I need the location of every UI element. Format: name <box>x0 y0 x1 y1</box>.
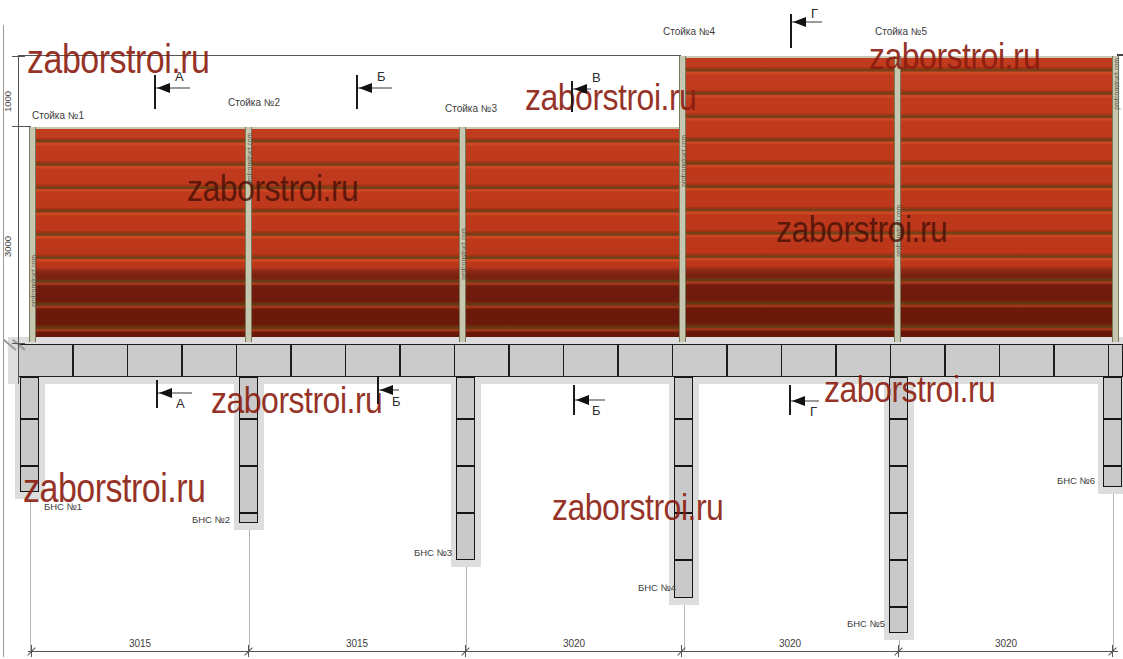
dim-span-1: 3015 <box>118 638 162 649</box>
fence-post-3: profconstruct.com <box>459 127 466 342</box>
watermark: zaborstroi.ru <box>552 486 723 530</box>
watermark: zaborstroi.ru <box>776 208 947 252</box>
dim-span-2: 3015 <box>335 638 379 649</box>
pile-label-3: БНС №3 <box>414 547 452 558</box>
watermark: zaborstroi.ru <box>824 368 995 412</box>
watermark: zaborstroi.ru <box>187 167 358 211</box>
marker-letter: Г <box>810 404 817 419</box>
pile-6 <box>1103 377 1122 487</box>
dim-height-3000: 3000 <box>2 213 13 257</box>
left-dim-tick <box>12 56 25 57</box>
fence-post-5: profconstruct.com <box>894 56 901 342</box>
pile-label-4: БНС №4 <box>638 582 676 593</box>
dim-span-4: 3020 <box>768 638 812 649</box>
left-dim-tick <box>12 343 25 344</box>
pile-label-5: БНС №5 <box>847 618 885 629</box>
watermark: zaborstroi.ru <box>525 76 696 120</box>
pile-1-extension-line <box>30 499 31 652</box>
watermark: zaborstroi.ru <box>211 379 382 423</box>
bottom-dimension-line <box>28 651 1118 652</box>
left-dim-tick <box>12 126 25 127</box>
marker-letter: Б <box>592 403 601 418</box>
marker-letter: В <box>592 70 601 85</box>
post-watermark-text: profconstruct.com <box>30 255 37 307</box>
watermark: zaborstroi.ru <box>869 35 1040 79</box>
marker-letter: Г <box>811 6 818 21</box>
pile-3-extension-line <box>466 567 467 652</box>
fence-drawing-canvas: profconstruct.com profconstruct.com prof… <box>0 0 1123 659</box>
pile-label-6: БНС №6 <box>1057 475 1095 486</box>
fence-panel-short-section <box>29 127 686 340</box>
post-label-4: Стойка №4 <box>663 26 715 37</box>
post-watermark-text: profconstruct.com <box>680 135 687 187</box>
post-watermark-text: profconstruct.com <box>460 228 467 280</box>
fence-post-6: profconstruct.com <box>1112 56 1119 342</box>
pile-6-extension-line <box>1113 494 1114 652</box>
post-label-2: Стойка №2 <box>228 97 280 108</box>
pile-2-extension-line <box>249 530 250 652</box>
marker-letter: А <box>175 69 184 84</box>
watermark: zaborstroi.ru <box>23 465 205 511</box>
fence-post-1: profconstruct.com <box>29 127 36 342</box>
pile-4-extension-line <box>684 605 685 652</box>
dim-span-3: 3020 <box>552 638 596 649</box>
post-label-3: Стойка №3 <box>445 103 497 114</box>
top-right-tick <box>1117 54 1123 56</box>
marker-letter: А <box>176 396 185 411</box>
dim-height-1000: 1000 <box>2 72 13 112</box>
marker-letter: Б <box>392 394 401 409</box>
post-watermark-text: profconstruct.com <box>1113 58 1120 110</box>
pile-label-2: БНС №2 <box>192 514 230 525</box>
marker-letter: Б <box>377 69 386 84</box>
left-dimension-line <box>18 55 19 384</box>
fence-post-2: profconstruct.com <box>245 127 252 342</box>
dim-span-5: 3020 <box>984 638 1028 649</box>
pile-5 <box>889 377 908 633</box>
post-label-1: Стойка №1 <box>32 110 84 121</box>
pile-3 <box>456 377 475 560</box>
